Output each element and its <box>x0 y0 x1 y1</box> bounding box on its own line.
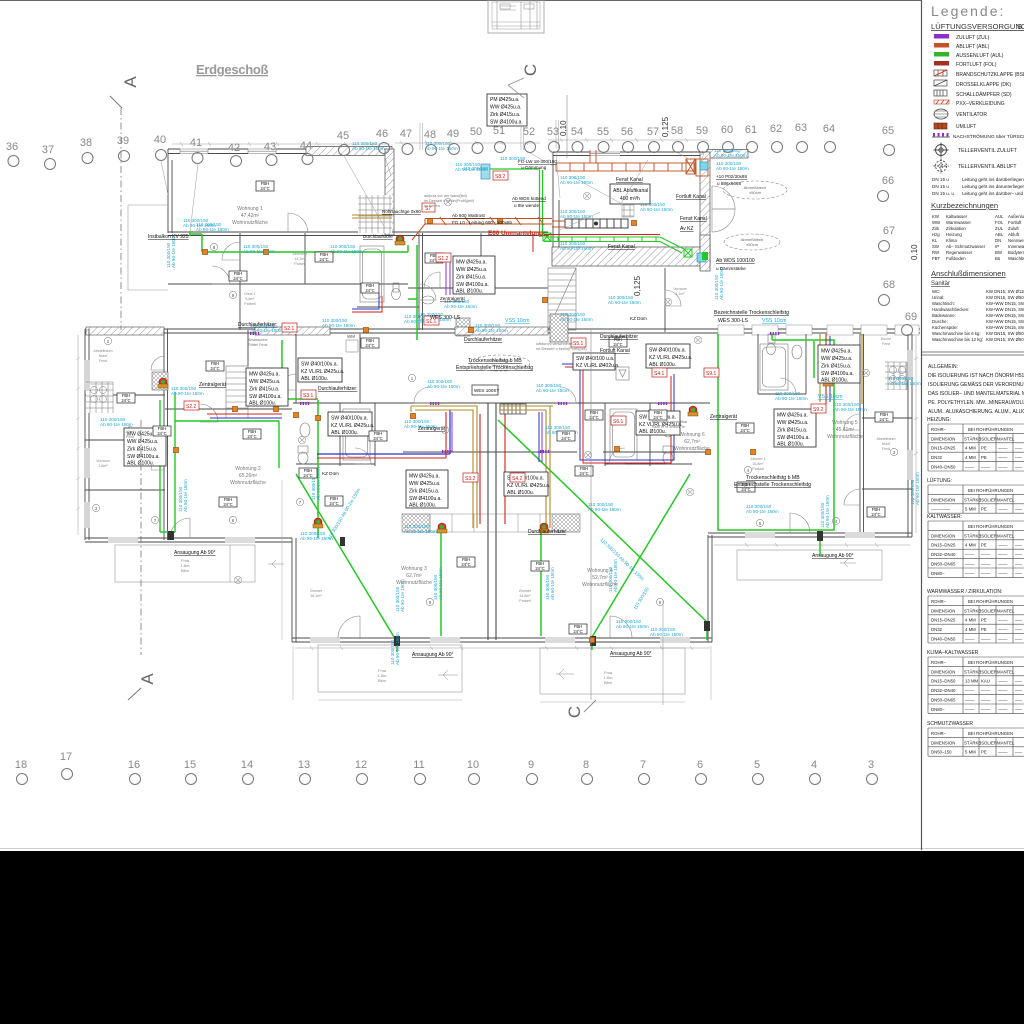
svg-text:Zimmer 1: Zimmer 1 <box>292 252 307 256</box>
svg-text:––––: –––– <box>965 707 975 712</box>
svg-text:PE: PE <box>981 455 987 460</box>
svg-text:Fenst Kanal: Fenst Kanal <box>608 244 635 250</box>
svg-text:ZULUFT (ZUL): ZULUFT (ZUL) <box>956 35 990 41</box>
svg-text:ZUL: ZUL <box>995 226 1004 231</box>
svg-text:SCHMUTZWASSER: SCHMUTZWASSER <box>927 721 973 727</box>
svg-text:WW: WW <box>932 220 941 225</box>
svg-text:ISOLIERUNG GEMÄSS DER VEROR: ISOLIERUNG GEMÄSS DER VERORDNUNG <box>928 381 1024 388</box>
svg-text:5: 5 <box>754 759 760 771</box>
svg-text:47: 47 <box>400 128 412 140</box>
svg-text:STÄRKE: STÄRKE <box>964 497 981 502</box>
svg-text:Fmst: Fmst <box>126 435 134 439</box>
svg-text:DIMENSION: DIMENSION <box>931 740 955 745</box>
svg-text:Abwaschbe: Abwaschbe <box>248 338 268 342</box>
svg-text:62,7m²: 62,7m² <box>406 573 422 579</box>
svg-text:Durchlauferhitzer: Durchlauferhitzer <box>528 529 566 535</box>
svg-text:FORTLUFT (FOL): FORTLUFT (FOL) <box>956 62 997 68</box>
svg-text:S4.2: S4.2 <box>512 476 523 482</box>
svg-text:ne-Dessert o berlin(Profil)(te: ne-Dessert o berlin(Profil)(teil) <box>536 347 587 351</box>
svg-text:DN40–DN50: DN40–DN50 <box>931 637 956 642</box>
svg-text:––––: –––– <box>965 562 975 567</box>
svg-text:0,10: 0,10 <box>910 244 919 260</box>
svg-text:––––: –––– <box>965 698 975 703</box>
svg-text:–––: ––– <box>1015 507 1023 512</box>
svg-text:MANTEL: MANTEL <box>997 533 1015 538</box>
svg-text:68: 68 <box>883 279 895 291</box>
svg-text:im führen: im führen <box>424 204 440 208</box>
svg-text:Bodytemperatur: Bodytemperatur <box>1008 250 1024 255</box>
svg-text:––––: –––– <box>998 688 1008 693</box>
svg-text:––––: –––– <box>981 637 991 642</box>
svg-text:BRANDSCHUTZKLAPPE (BSK): BRANDSCHUTZKLAPPE (BSK) <box>956 72 1024 78</box>
svg-text:TELLERVENTIL ABLUFT: TELLERVENTIL ABLUFT <box>958 164 1017 170</box>
svg-text:ISOLIER: ISOLIER <box>980 669 997 674</box>
svg-text:67: 67 <box>883 225 895 237</box>
svg-text:16,1m²: 16,1m² <box>310 594 322 598</box>
svg-text:1,6m²: 1,6m² <box>98 464 108 468</box>
svg-text:––––: –––– <box>981 707 991 712</box>
svg-text:Küche: Küche <box>881 337 891 341</box>
svg-text:Abluft: Abluft <box>1008 232 1020 237</box>
svg-text:16: 16 <box>128 759 140 771</box>
svg-text:Hzg: Hzg <box>932 232 940 237</box>
svg-text:C: C <box>565 706 584 718</box>
svg-text:AUL: AUL <box>995 214 1004 219</box>
svg-text:PE: PE <box>981 507 987 512</box>
svg-text:––––: –––– <box>998 507 1008 512</box>
svg-text:DIMENSION: DIMENSION <box>931 669 955 674</box>
svg-text:+10 P02/30x88: +10 P02/30x88 <box>716 174 747 179</box>
svg-text:14: 14 <box>241 759 253 771</box>
svg-text:über Leg: über Leg <box>492 363 508 368</box>
svg-text:FOL: FOL <box>995 220 1004 225</box>
svg-text:Av KZ: Av KZ <box>680 226 694 232</box>
svg-text:Waschmaschine bis 6 kg:: Waschmaschine bis 6 kg: <box>932 331 981 336</box>
svg-text:S9.1: S9.1 <box>706 371 717 377</box>
svg-text:Entsprechstelle Trockenschleif: Entsprechstelle Trockenschleifstg <box>734 482 811 488</box>
svg-text:BEI ROHFÜHRUNGEN: BEI ROHFÜHRUNGEN <box>968 488 1013 493</box>
svg-text:17: 17 <box>60 751 72 763</box>
svg-text:Bitm: Bitm <box>378 678 387 683</box>
svg-text:15: 15 <box>184 759 196 771</box>
svg-text:Fortluft Kanal: Fortluft Kanal <box>600 348 630 354</box>
svg-text:DN32–DN40: DN32–DN40 <box>931 688 956 693</box>
svg-text:65,26m²: 65,26m² <box>239 473 258 479</box>
svg-text:Instbalkon KV 925: Instbalkon KV 925 <box>148 234 189 240</box>
svg-text:–––: ––– <box>1015 750 1023 755</box>
svg-text:WES 300-LS: WES 300-LS <box>430 315 461 321</box>
svg-text:14,6m²: 14,6m² <box>519 594 531 598</box>
svg-text:ALUM.. ALUKASCHIERUNG. ALUM..: ALUM.. ALUKASCHIERUNG. ALUM.. ALUGLA <box>928 409 1024 415</box>
svg-text:u-Dämmung: u-Dämmung <box>521 165 547 170</box>
svg-text:Urinal:: Urinal: <box>932 295 944 300</box>
svg-text:Zimmer: Zimmer <box>310 589 323 593</box>
svg-text:Ab WDS küttend: Ab WDS küttend <box>512 196 546 201</box>
svg-text:––––: –––– <box>998 707 1008 712</box>
svg-text:––––: –––– <box>965 552 975 557</box>
svg-text:DN32–DN40: DN32–DN40 <box>931 552 956 557</box>
svg-text:54: 54 <box>571 126 583 138</box>
svg-text:––––: –––– <box>998 571 1008 576</box>
svg-text:42: 42 <box>228 142 240 154</box>
svg-text:BEI ROHFÜHRUNGEN: BEI ROHFÜHRUNGEN <box>968 731 1013 736</box>
svg-text:65: 65 <box>882 125 894 137</box>
svg-text:10: 10 <box>467 759 479 771</box>
svg-text:S2.1: S2.1 <box>284 326 295 332</box>
svg-text:Abstellraum: Abstellraum <box>94 349 113 353</box>
svg-text:Vorraum: Vorraum <box>96 459 110 463</box>
svg-text:aufputz vor der wand(teil): aufputz vor der wand(teil) <box>424 194 468 198</box>
svg-text:TELLERVENTIL ZULUFT: TELLERVENTIL ZULUFT <box>958 148 1018 154</box>
svg-text:STÄRKE: STÄRKE <box>964 436 981 441</box>
svg-text:––––: –––– <box>998 679 1008 684</box>
svg-text:46: 46 <box>376 128 388 140</box>
svg-text:Fmst: Fmst <box>882 447 890 451</box>
svg-text:Innenwasser: Innenwasser <box>1008 244 1024 249</box>
svg-text:–––: ––– <box>1015 562 1023 567</box>
svg-text:53: 53 <box>547 126 559 138</box>
svg-text:Waschbüdel: Waschbüdel <box>1008 256 1024 261</box>
svg-text:luftdurchl verschnellst: luftdurchl verschnellst <box>536 342 573 346</box>
svg-text:Waschtisch:: Waschtisch: <box>932 301 955 306</box>
svg-text:PE: PE <box>981 618 987 623</box>
svg-text:Vorraum: Vorraum <box>673 287 687 291</box>
svg-text:4: 4 <box>811 759 817 771</box>
svg-text:40: 40 <box>154 134 166 146</box>
svg-text:––––: –––– <box>998 543 1008 548</box>
svg-text:––––: –––– <box>998 465 1008 470</box>
svg-text:S4.1: S4.1 <box>654 371 665 377</box>
svg-text:61: 61 <box>745 124 757 136</box>
svg-text:––––: –––– <box>965 637 975 642</box>
svg-text:Zimmer: Zimmer <box>519 589 532 593</box>
svg-text:PE. POLYETHYLEN. MW...MINERAL: PE. POLYETHYLEN. MW...MINERALWOLLE <box>928 400 1024 406</box>
svg-text:Wohnnutzfläche: Wohnnutzfläche <box>827 434 863 440</box>
svg-text:BW: BW <box>995 250 1003 255</box>
svg-text:4 MM: 4 MM <box>965 455 976 460</box>
svg-text:41: 41 <box>190 137 202 149</box>
svg-text:Nutzf: Nutzf <box>882 442 890 446</box>
svg-text:Wohnung 3: Wohnung 3 <box>401 566 427 572</box>
svg-text:KW: KW <box>932 214 940 219</box>
svg-text:11: 11 <box>413 759 424 771</box>
svg-text:––––: –––– <box>965 688 975 693</box>
svg-text:VSS 10cm: VSS 10cm <box>505 318 530 324</box>
svg-text:47,42m²: 47,42m² <box>241 213 260 219</box>
svg-text:Fmst: Fmst <box>882 342 890 346</box>
svg-text:Parkett: Parkett <box>244 302 255 306</box>
svg-text:IP: IP <box>995 244 999 249</box>
svg-text:–––: ––– <box>1015 455 1023 460</box>
svg-text:Wohnnutzfläche: Wohnnutzfläche <box>396 580 432 586</box>
svg-text:Wohnnutzfläche: Wohnnutzfläche <box>674 446 710 452</box>
svg-text:55: 55 <box>597 126 609 138</box>
svg-text:STÄRKE: STÄRKE <box>964 608 981 613</box>
svg-text:BEI ROHFÜHRUNGEN: BEI ROHFÜHRUNGEN <box>968 524 1013 529</box>
svg-text:–––: ––– <box>1015 552 1023 557</box>
svg-text:KALTWASSER:: KALTWASSER: <box>927 514 962 520</box>
svg-text:49: 49 <box>447 128 459 140</box>
svg-text:57: 57 <box>647 126 659 138</box>
svg-text:4 MM: 4 MM <box>965 543 976 548</box>
svg-text:S2.2: S2.2 <box>186 404 197 410</box>
svg-text:–––: ––– <box>1015 627 1023 632</box>
svg-text:S6.1: S6.1 <box>613 419 624 425</box>
svg-text:DROSSELKLAPPE (DK): DROSSELKLAPPE (DK) <box>956 82 1011 88</box>
svg-text:DIMENSION: DIMENSION <box>931 533 955 538</box>
svg-text:4,1m²: 4,1m² <box>675 292 685 296</box>
svg-text:Leitung geht ins darüber– und: Leitung geht ins darüber– und dar <box>962 191 1024 196</box>
svg-text:56: 56 <box>621 126 633 138</box>
svg-text:Parkett: Parkett <box>294 262 305 266</box>
svg-text:Rüttel Fmst: Rüttel Fmst <box>248 343 268 347</box>
svg-text:ISOLIER: ISOLIER <box>980 533 997 538</box>
svg-text:66: 66 <box>882 175 894 187</box>
svg-text:––––: –––– <box>981 465 991 470</box>
svg-text:45: 45 <box>337 130 349 142</box>
svg-text:62: 62 <box>770 123 782 135</box>
svg-text:Wohnung 6: Wohnung 6 <box>679 432 705 438</box>
svg-text:Handwaschbecken:: Handwaschbecken: <box>932 307 970 312</box>
svg-text:DN32: DN32 <box>931 455 943 460</box>
svg-text:PE: PE <box>981 627 987 632</box>
svg-text:S8.2: S8.2 <box>495 174 506 180</box>
svg-text:MANTEL: MANTEL <box>997 497 1015 502</box>
svg-text:DN50–150: DN50–150 <box>931 750 952 755</box>
svg-text:39: 39 <box>117 135 129 147</box>
svg-text:KW+WW DN15, SW Ø50: KW+WW DN15, SW Ø50 <box>986 325 1024 330</box>
svg-text:ABL Abluftkanal: ABL Abluftkanal <box>613 188 648 194</box>
svg-text:S3.1: S3.1 <box>303 393 314 399</box>
svg-text:u 886x6668: u 886x6668 <box>717 181 741 186</box>
svg-text:43: 43 <box>264 141 276 153</box>
svg-text:DN15–DN25: DN15–DN25 <box>931 618 956 623</box>
svg-text:VSS 10cm: VSS 10cm <box>762 318 787 324</box>
svg-text:FG L0 - Leitung 600 - 100x8b: FG L0 - Leitung 600 - 100x8b <box>452 220 512 225</box>
svg-text:52: 52 <box>523 126 535 138</box>
svg-text:0,125: 0,125 <box>661 116 670 137</box>
svg-text:6: 6 <box>697 759 703 771</box>
svg-text:37: 37 <box>42 144 54 156</box>
svg-text:48: 48 <box>424 129 436 141</box>
svg-text:5 MM: 5 MM <box>965 750 976 755</box>
svg-text:LÜFTUNG:: LÜFTUNG: <box>927 477 952 484</box>
svg-text:Wohnung 2: Wohnung 2 <box>235 466 261 472</box>
svg-text:––––: –––– <box>998 627 1008 632</box>
svg-text:±50cm: ±50cm <box>746 242 759 247</box>
svg-text:12: 12 <box>355 759 367 771</box>
svg-text:WARMWASSER / ZIRKULATION:: WARMWASSER / ZIRKULATION: <box>927 589 1002 595</box>
svg-text:BEI ROHFÜHRUNGEN: BEI ROHFÜHRUNGEN <box>968 599 1013 604</box>
svg-text:45,61m²: 45,61m² <box>836 427 855 433</box>
svg-text:Parkett: Parkett <box>519 599 530 603</box>
svg-text:4 MM: 4 MM <box>965 627 976 632</box>
svg-text:ISOLIER: ISOLIER <box>980 608 997 613</box>
svg-text:RW: RW <box>932 250 940 255</box>
svg-text:13 MM: 13 MM <box>965 679 979 684</box>
svg-text:Außenluft: Außenluft <box>1008 214 1024 219</box>
svg-text:ALLGEMEIN:: ALLGEMEIN: <box>928 364 958 370</box>
svg-text:MANTEL: MANTEL <box>997 740 1015 745</box>
svg-text:NACHSTRÖMUNG über TÜRSCHLITZ: NACHSTRÖMUNG über TÜRSCHLITZE <box>953 133 1024 140</box>
svg-text:––––: –––– <box>998 750 1008 755</box>
svg-text:DAS ISOLIER– UND MANTELMATE: DAS ISOLIER– UND MANTELMATERIAL M <box>928 391 1024 397</box>
svg-text:–––: ––– <box>1015 543 1023 548</box>
svg-text:DN: DN <box>995 238 1001 243</box>
svg-text:STÄRKE: STÄRKE <box>964 740 981 745</box>
svg-text:MANTEL: MANTEL <box>997 436 1015 441</box>
svg-text:–––: ––– <box>1015 618 1023 623</box>
svg-text:WM: WM <box>347 334 355 339</box>
svg-text:S3.2: S3.2 <box>465 476 476 482</box>
svg-text:Küchenspüle:: Küchenspüle: <box>932 325 958 330</box>
svg-text:E60 Ummantelung: E60 Ummantelung <box>488 230 543 237</box>
svg-text:KW+WW DN15, SW Ø50: KW+WW DN15, SW Ø50 <box>986 301 1024 306</box>
svg-text:Kurzbezeichnungen: Kurzbezeichnungen <box>931 201 998 210</box>
svg-text:DN 15 u. u: DN 15 u. u <box>932 191 954 196</box>
svg-text:A: A <box>121 76 140 88</box>
svg-text:FG-LW 18-300/150: FG-LW 18-300/150 <box>518 159 557 164</box>
svg-text:Durchlauferhitzer: Durchlauferhitzer <box>464 337 502 343</box>
svg-text:59: 59 <box>696 125 708 137</box>
svg-text:–––: ––– <box>1015 637 1023 642</box>
svg-text:Nennweite: Nennweite <box>1008 238 1024 243</box>
svg-text:2,8m²: 2,8m² <box>125 430 135 434</box>
svg-text:Wohnung 1: Wohnung 1 <box>237 206 263 212</box>
svg-text:18: 18 <box>15 759 27 771</box>
svg-text:Ansaugung Ab 90°: Ansaugung Ab 90° <box>412 652 453 658</box>
svg-text:Klima: Klima <box>946 238 957 243</box>
svg-text:MANTEL: MANTEL <box>997 608 1015 613</box>
svg-text:Wohnnutzfläche: Wohnnutzfläche <box>232 220 268 226</box>
svg-text:64: 64 <box>823 123 835 135</box>
svg-text:Durchlauferhitzer:: Durchlauferhitzer: <box>318 386 357 392</box>
svg-text:13: 13 <box>298 759 310 771</box>
svg-text:Zuluft: Zuluft <box>1008 226 1020 231</box>
svg-text:KZ Düm: KZ Düm <box>630 316 647 321</box>
svg-text:KW DN15, SW Ø50: KW DN15, SW Ø50 <box>986 295 1024 300</box>
svg-text:Zimmer 1: Zimmer 1 <box>750 457 765 461</box>
svg-text:–––: ––– <box>1015 707 1023 712</box>
svg-text:–––: ––– <box>1015 446 1023 451</box>
svg-text:Ab 600 Wattrost: Ab 600 Wattrost <box>452 213 485 218</box>
svg-text:51: 51 <box>493 125 505 137</box>
svg-text:––––: –––– <box>965 571 975 576</box>
svg-text:VSS 10cm: VSS 10cm <box>818 394 843 400</box>
svg-text:KZ Düm: KZ Düm <box>322 471 339 476</box>
svg-text:44: 44 <box>300 140 312 152</box>
svg-text:Sanitär: Sanitär <box>931 281 950 287</box>
svg-text:––––: –––– <box>998 446 1008 451</box>
svg-text:Ansaugung Ab 90°: Ansaugung Ab 90° <box>174 550 215 556</box>
svg-text:DN15–DN25: DN15–DN25 <box>931 543 956 548</box>
svg-text:S1.2: S1.2 <box>438 256 449 262</box>
svg-text:––––: –––– <box>981 698 991 703</box>
svg-text:14,2m²: 14,2m² <box>294 257 306 261</box>
svg-text:KW DN15, SW Ø110: KW DN15, SW Ø110 <box>986 289 1024 294</box>
svg-text:KLIMA–KALTWASSER: KLIMA–KALTWASSER <box>927 650 979 656</box>
svg-text:FBT: FBT <box>932 256 940 261</box>
svg-text:Ab WDS 100/100: Ab WDS 100/100 <box>716 258 755 264</box>
svg-text:0,10: 0,10 <box>559 120 568 136</box>
svg-text:––––: –––– <box>998 637 1008 642</box>
svg-text:Erdgeschoß: Erdgeschoß <box>196 62 268 77</box>
svg-text:Durchlauferhitzer: Durchlauferhitzer <box>600 334 638 340</box>
svg-text:–––: ––– <box>1015 688 1023 693</box>
svg-text:Nutzf: Nutzf <box>99 354 107 358</box>
svg-text:KW+WW DN15, SW Ø50: KW+WW DN15, SW Ø50 <box>986 307 1024 312</box>
svg-text:Kaltwasser: Kaltwasser <box>946 214 968 219</box>
svg-text:4 MM: 4 MM <box>965 446 976 451</box>
svg-text:8: 8 <box>583 759 589 771</box>
svg-text:––––––––: –––––––– <box>931 507 951 512</box>
svg-text:––––: –––– <box>998 618 1008 623</box>
svg-text:–––: ––– <box>1015 679 1023 684</box>
svg-text:KW DN15, SW Ø50: KW DN15, SW Ø50 <box>986 331 1024 336</box>
svg-text:ISOLIER: ISOLIER <box>980 436 997 441</box>
svg-text:16,8m²: 16,8m² <box>752 462 764 466</box>
svg-text:DN15–DN50: DN15–DN50 <box>931 679 956 684</box>
svg-text:Zirk: Zirk <box>932 226 940 231</box>
svg-text:400 m³/h: 400 m³/h <box>620 196 640 202</box>
svg-text:PE: PE <box>981 446 987 451</box>
svg-text:DIMENSION: DIMENSION <box>931 497 955 502</box>
svg-text:ISOLIER: ISOLIER <box>980 740 997 745</box>
svg-text:ABL: ABL <box>995 232 1004 237</box>
svg-text:S9.2: S9.2 <box>813 407 824 413</box>
svg-text:MANTEL: MANTEL <box>997 669 1015 674</box>
svg-text:DIMENSION: DIMENSION <box>931 436 955 441</box>
svg-text:LÜFTUNGSVERSORGUNG: LÜFTUNGSVERSORGUNG <box>931 22 1024 31</box>
svg-text:DIMENSION: DIMENSION <box>931 608 955 613</box>
svg-text:AUSSENLUFT (AUL): AUSSENLUFT (AUL) <box>956 53 1004 59</box>
svg-text:HEIZUNG:: HEIZUNG: <box>927 417 951 423</box>
svg-text:––––: –––– <box>981 552 991 557</box>
svg-text:Anschlußdimensionen: Anschlußdimensionen <box>931 269 1006 278</box>
svg-text:Leitung geht ins darüberliegen: Leitung geht ins darüberliegende G <box>962 177 1024 182</box>
svg-text:KL: KL <box>932 238 938 243</box>
svg-text:Dusche:: Dusche: <box>932 319 948 324</box>
svg-text:A: A <box>138 673 157 685</box>
svg-text:5 MM: 5 MM <box>965 507 976 512</box>
svg-text:Ansaugung Ab 90°: Ansaugung Ab 90° <box>610 651 651 657</box>
svg-text:WES 100ST: WES 100ST <box>474 388 499 393</box>
svg-text:DN80–: DN80– <box>931 707 945 712</box>
svg-text:Waschmaschine bis 12 kg:: Waschmaschine bis 12 kg: <box>932 337 983 342</box>
svg-text:ISOLIER: ISOLIER <box>980 497 997 502</box>
svg-text:ROHR–: ROHR– <box>931 599 947 604</box>
svg-text:Warmwasser: Warmwasser <box>946 220 971 225</box>
svg-text:DN 15 u: DN 15 u <box>932 184 949 189</box>
svg-text:im Dessert o berlin(Profil)(te: im Dessert o berlin(Profil)(teil) <box>424 199 475 203</box>
svg-text:––––: –––– <box>998 562 1008 567</box>
svg-text:Fenst Kanal: Fenst Kanal <box>680 216 707 222</box>
svg-text:Fortluft Kanal: Fortluft Kanal <box>676 194 706 200</box>
svg-text:Abstellraum: Abstellraum <box>877 437 896 441</box>
svg-text:–––: ––– <box>1015 571 1023 576</box>
svg-text:SW: SW <box>932 244 940 249</box>
svg-text:STÄRKE: STÄRKE <box>964 669 981 674</box>
svg-text:Fortluft: Fortluft <box>1008 220 1022 225</box>
svg-text:PE: PE <box>981 543 987 548</box>
svg-text:Trockenschleifstg b MB: Trockenschleifstg b MB <box>746 475 800 481</box>
svg-text:KAU: KAU <box>981 679 990 684</box>
svg-text:WC:: WC: <box>932 289 940 294</box>
svg-text:WES 300-LS: WES 300-LS <box>718 318 749 324</box>
svg-text:––––: –––– <box>965 465 975 470</box>
svg-text:DN32: DN32 <box>931 627 943 632</box>
svg-text:38: 38 <box>80 137 92 149</box>
